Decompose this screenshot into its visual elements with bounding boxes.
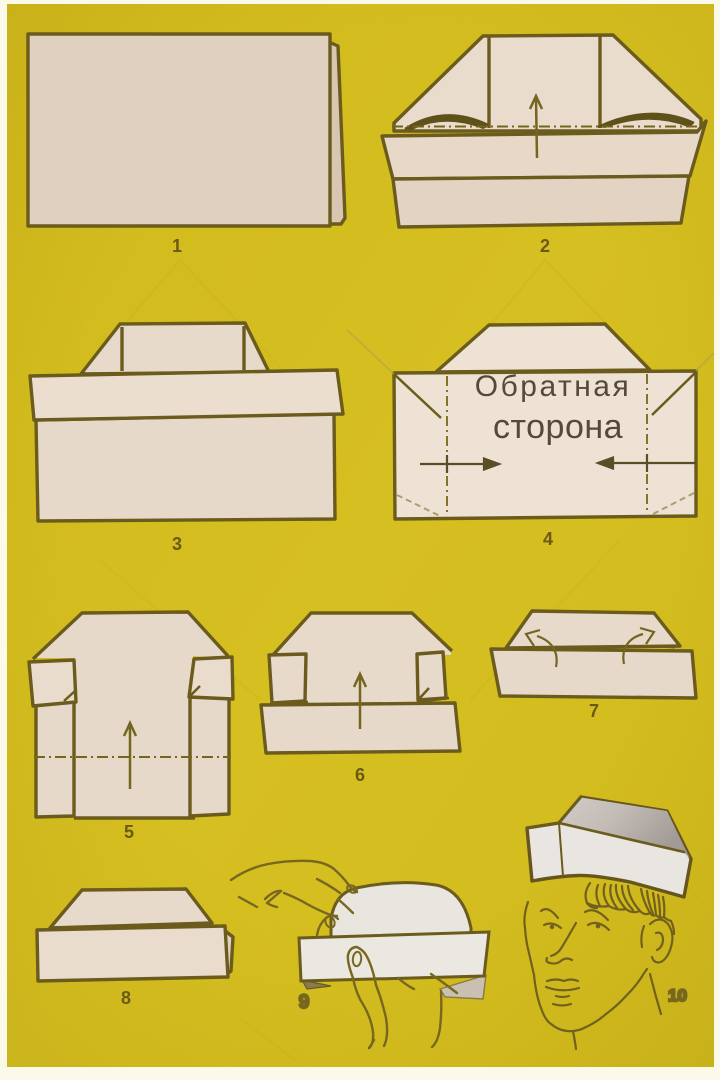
svg-text:1: 1 xyxy=(172,236,182,256)
svg-text:сторона: сторона xyxy=(493,408,623,446)
svg-text:8: 8 xyxy=(121,988,131,1008)
svg-text:9: 9 xyxy=(299,992,310,1013)
svg-text:10: 10 xyxy=(668,986,687,1005)
svg-text:5: 5 xyxy=(124,822,134,842)
svg-text:6: 6 xyxy=(355,765,365,785)
svg-text:3: 3 xyxy=(172,534,182,554)
svg-text:4: 4 xyxy=(543,529,553,549)
svg-text:7: 7 xyxy=(589,701,599,721)
svg-text:Обратная: Обратная xyxy=(475,370,631,403)
svg-text:2: 2 xyxy=(540,236,550,256)
